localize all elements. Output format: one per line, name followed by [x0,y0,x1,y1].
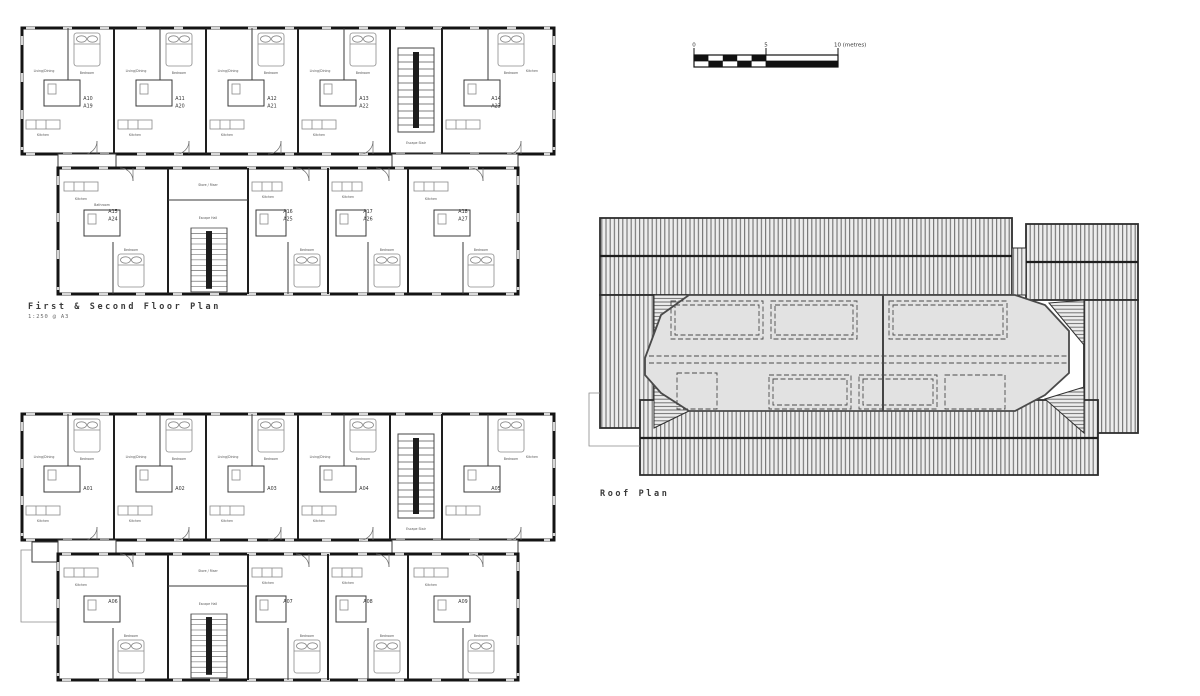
room-label: Kitchen [129,519,141,523]
room-label: Store / Riser [198,183,218,187]
room-label: Bathroom [94,203,110,207]
scale-bar-checker [694,55,838,67]
wc-icon [468,84,476,94]
room-label: Bedroom [504,457,518,461]
room-label: Kitchen [221,519,233,523]
room-label: Bedroom [300,248,314,252]
first-second-floor-plan-scale-note: 1:250 @ A3 [28,314,69,320]
wc-icon [324,84,332,94]
wc-icon [232,84,240,94]
stair-icon [191,614,227,678]
room-label: Store / Riser [198,569,218,573]
roof-plan-title: Roof Plan [600,489,669,499]
room-label: Living/Dining [218,455,239,459]
unit-label: A14 [491,96,500,102]
unit-label: A25 [283,217,292,223]
wc-icon [468,470,476,480]
room-label: Bedroom [504,71,518,75]
stair-icon [398,48,434,132]
wc-icon [140,470,148,480]
unit-label: A01 [83,486,92,492]
stair-icon [191,228,227,292]
room-label: Kitchen [425,197,437,201]
unit-label: A09 [458,599,467,605]
room-label: Living/Dining [34,455,55,459]
bed-icon [294,254,320,287]
scale-zero-label: 0 [692,43,696,49]
room-label: Living/Dining [126,455,147,459]
unit-label: A10 [83,96,92,102]
bed-icon [294,640,320,673]
room-label: Living/Dining [218,69,239,73]
unit-label: A05 [491,486,500,492]
bed-icon [498,419,524,452]
room-label: Escape Hall [199,602,218,606]
ground-floor-plan-drawing: Living/Dining Bedroom Kitchen A01 Living… [16,408,566,696]
bed-icon [374,640,400,673]
room-label: Kitchen [221,133,233,137]
unit-label: A27 [458,217,467,223]
scale-five-label: 5 [764,43,768,49]
unit-label: A04 [359,486,368,492]
lower-band: Kitchen Bedroom Bathroom A15 A24 Store /… [58,168,518,294]
unit-label: A03 [267,486,276,492]
room-label: Bedroom [474,248,488,252]
room-label: Bedroom [380,248,394,252]
lower-band: Kitchen Bedroom A06 Store / Riser Escape… [58,554,518,680]
unit-label: A21 [267,104,276,110]
room-label: Bedroom [80,71,94,75]
room-label: Bedroom [264,71,278,75]
wc-icon [48,470,56,480]
bed-icon [374,254,400,287]
unit-label: A22 [359,104,368,110]
wc-icon [140,84,148,94]
upper-band: Living/Dining Bedroom Kitchen A10 A19 Li… [22,28,554,154]
unit-label: A17 [363,209,372,215]
stair-icon [398,434,434,518]
wc-icon [340,214,348,224]
wc-icon [88,600,96,610]
room-label: Bedroom [172,457,186,461]
wc-icon [438,600,446,610]
bed-icon [166,419,192,452]
unit-label: A13 [359,96,368,102]
wc-icon [438,214,446,224]
bed-icon [166,33,192,66]
stair-core: Escape Stair [398,434,434,531]
bed-icon [74,419,100,452]
wc-icon [324,470,332,480]
room-label: Bedroom [172,71,186,75]
room-label: Bedroom [124,634,138,638]
room-label: Bedroom [80,457,94,461]
room-label: Bedroom [300,634,314,638]
scale-bar-ticks [694,48,838,55]
room-label: Kitchen [313,133,325,137]
unit-label: A02 [175,486,184,492]
bed-icon [468,640,494,673]
unit-label: A06 [108,599,117,605]
unit-label: A20 [175,104,184,110]
room-label: Escape Stair [406,141,426,145]
unit-label: A11 [175,96,184,102]
room-label: Living/Dining [34,69,55,73]
bed-icon [468,254,494,287]
bed-icon [498,33,524,66]
room-label: Bedroom [380,634,394,638]
unit-label: A26 [363,217,372,223]
wc-icon [260,214,268,224]
stair-core: Escape Stair [398,48,434,145]
unit-label: A23 [491,104,500,110]
room-label: Living/Dining [310,455,331,459]
link-block [58,154,116,168]
room-label: Kitchen [129,133,141,137]
room-label: Bedroom [356,457,370,461]
external-chamber [32,542,58,562]
wc-icon [232,470,240,480]
link-block [392,154,518,168]
room-label: Bedroom [474,634,488,638]
room-label: Kitchen [526,69,538,73]
room-label: Kitchen [262,581,274,585]
room-label: Kitchen [37,133,49,137]
room-label: Kitchen [342,581,354,585]
first-second-floor-plan-drawing: Living/Dining Bedroom Kitchen A10 A19 Li… [16,22,566,304]
link-block [58,540,116,554]
unit-label: A08 [363,599,372,605]
room-label: Bedroom [124,248,138,252]
room-label: Kitchen [425,583,437,587]
room-label: Living/Dining [310,69,331,73]
room-label: Living/Dining [126,69,147,73]
unit-label: A12 [267,96,276,102]
wc-icon [260,600,268,610]
scale-ten-label: 10 (metres) [834,43,866,49]
bed-icon [258,33,284,66]
unit-label: A24 [108,217,117,223]
bed-icon [258,419,284,452]
room-label: Kitchen [313,519,325,523]
room-label: Escape Stair [406,527,426,531]
room-label: Kitchen [262,195,274,199]
room-label: Kitchen [75,197,87,201]
unit-label: A07 [283,599,292,605]
upper-band: Living/Dining Bedroom Kitchen A01 Living… [22,414,554,540]
roof-plan-drawing [583,203,1200,493]
room-label: Bedroom [264,457,278,461]
room-label: Bedroom [356,71,370,75]
room-label: Kitchen [342,195,354,199]
unit-label: A18 [458,209,467,215]
wc-icon [88,214,96,224]
link-block [392,540,518,554]
unit-label: A15 [108,209,117,215]
bed-icon [350,33,376,66]
bed-icon [118,254,144,287]
wc-icon [340,600,348,610]
first-second-floor-plan-title: First & Second Floor Plan [28,302,221,312]
bed-icon [350,419,376,452]
room-label: Kitchen [37,519,49,523]
unit-label: A16 [283,209,292,215]
drawing-sheet: Living/Dining Bedroom Kitchen A10 A19 Li… [0,0,1200,696]
room-label: Kitchen [526,455,538,459]
room-label: Escape Hall [199,216,218,220]
wc-icon [48,84,56,94]
bed-icon [118,640,144,673]
room-label: Kitchen [75,583,87,587]
bed-icon [74,33,100,66]
unit-label: A19 [83,104,92,110]
scale-bar: 0 5 10 (metres) [684,40,894,72]
